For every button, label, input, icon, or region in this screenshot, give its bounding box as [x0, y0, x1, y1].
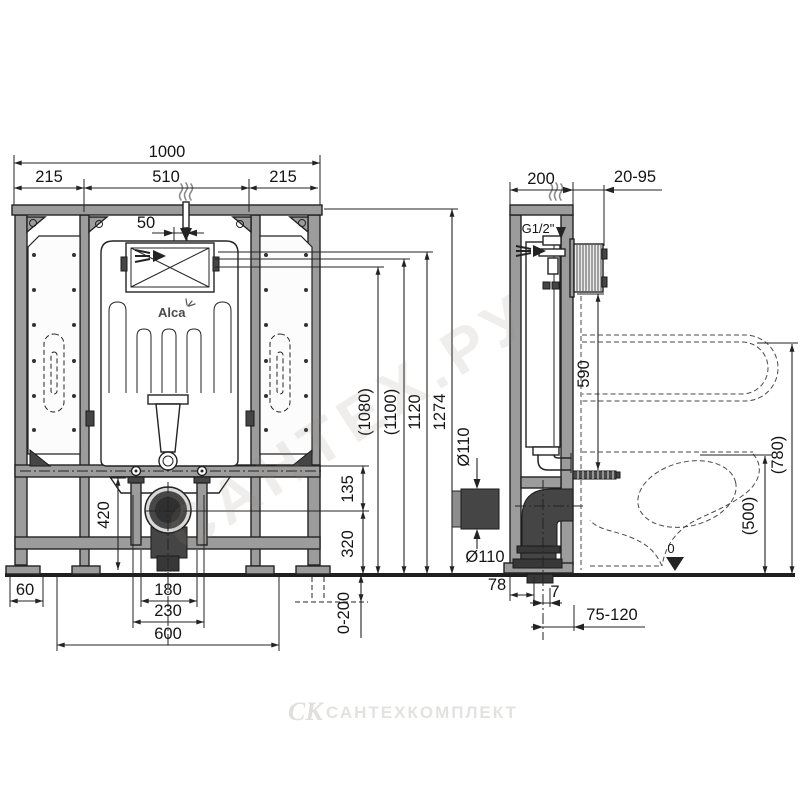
dim-center-span: 510: [152, 168, 180, 186]
dim-320: 320: [339, 530, 357, 558]
outlet-pipe-piece: [452, 458, 499, 549]
dim-0-200: 0-200: [335, 592, 353, 634]
dim-75-120: 75-120: [586, 606, 637, 624]
flush-button-box: [570, 239, 607, 297]
dim-135: 135: [339, 475, 357, 503]
dim-dia110-top: Ø110: [455, 427, 473, 466]
dim-78: 78: [488, 576, 506, 594]
side-panel-left: [28, 236, 80, 466]
watermark-company: САНТЕХКОМПЛЕКТ: [326, 703, 518, 722]
side-view: 200 20-95 G1/2" 590 Ø110 Ø110 (780) (500…: [452, 168, 798, 640]
dim-590: 590: [575, 360, 593, 388]
side-dimensions: 200 20-95 G1/2" 590 Ø110 Ø110 (780) (500…: [455, 168, 798, 631]
dim-right-span: 215: [269, 168, 297, 186]
inspection-opening: [121, 243, 219, 292]
dim-20-95: 20-95: [614, 168, 656, 186]
dim-depth-200: 200: [527, 170, 555, 188]
dim-180: 180: [154, 581, 182, 599]
dim-230: 230: [154, 602, 182, 620]
dim-500: (500): [740, 497, 758, 536]
bowl-bracket: [573, 471, 620, 479]
watermark-logo: СК: [288, 697, 324, 726]
water-supply-icon: [180, 183, 193, 200]
dim-total-width: 1000: [149, 143, 186, 161]
dim-dia110-bottom: Ø110: [465, 548, 504, 566]
dim-60: 60: [16, 581, 34, 599]
floor-level-marker: [666, 557, 684, 571]
dim-left-span: 215: [35, 168, 63, 186]
dim-zero-level: 0: [667, 541, 674, 556]
dim-780: (780): [769, 436, 787, 475]
dim-600: 600: [154, 625, 182, 643]
wc-frame-drawing: Alca: [0, 0, 800, 800]
dim-g12: G1/2": [522, 221, 555, 236]
dim-7: 7: [550, 583, 559, 601]
dim-420: 420: [95, 501, 113, 529]
technical-drawing-page: Alca: [0, 0, 800, 800]
inlet-arrow-icon: [180, 228, 192, 241]
dim-inlet-offset: 50: [137, 214, 155, 232]
brand-logo: Alca: [158, 305, 186, 320]
